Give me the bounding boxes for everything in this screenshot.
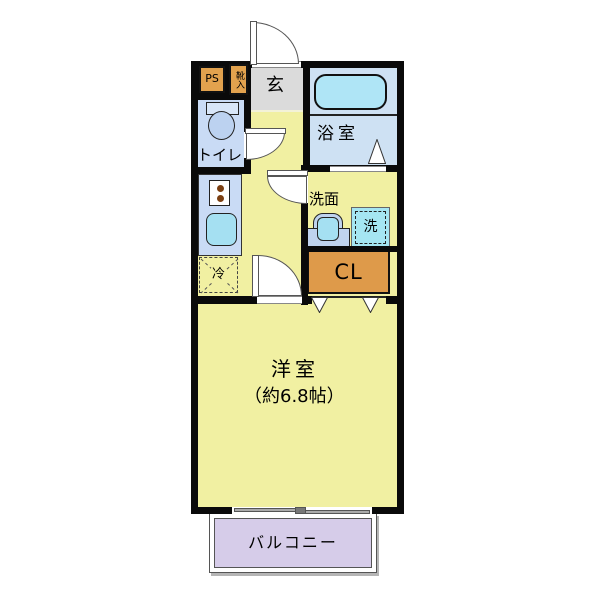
wall-right	[397, 61, 404, 514]
toilet-label: トイレ	[197, 147, 242, 164]
burner-icon	[217, 185, 224, 192]
bathtub	[314, 74, 387, 110]
wall-room-top-right	[386, 296, 404, 304]
balcony-label: バルコニー	[248, 534, 338, 552]
entrance-door-leaf	[250, 21, 257, 65]
room-door-threshold	[257, 296, 302, 304]
entrance-door-arc	[252, 22, 299, 64]
room-door-leaf	[252, 255, 259, 297]
stove	[209, 180, 230, 206]
genkan-label: 玄	[266, 76, 284, 97]
washing-machine-label: 洗	[364, 219, 378, 235]
bathroom-folding-door-icon	[368, 139, 386, 164]
balcony-window	[232, 507, 372, 514]
western-room-label: 洋室	[271, 358, 319, 381]
washroom-label: 洗面	[309, 191, 339, 208]
refrigerator-space: 冷	[199, 257, 238, 293]
washing-machine-space: 洗	[351, 207, 390, 248]
pipe-space-label: PS	[205, 73, 219, 86]
closet-box: CL	[307, 250, 390, 294]
bathtub-platform-line	[310, 114, 397, 116]
shoe-cabinet-label: 靴入	[234, 71, 243, 89]
window-pane-left	[234, 508, 298, 512]
balcony-inner: バルコニー	[214, 518, 372, 568]
balcony-area: バルコニー	[209, 513, 377, 573]
wall-room-top-left	[191, 296, 257, 304]
wall-left	[191, 61, 198, 514]
wall-hall-washroom-lower	[301, 203, 308, 305]
washbasin-bowl	[317, 217, 339, 241]
refrigerator-label: 冷	[211, 268, 226, 283]
western-room-size: （約6.8帖）	[244, 387, 345, 408]
wall-toilet-bottom	[191, 167, 251, 174]
burner-icon	[217, 195, 224, 202]
closet-folding-door-icon	[311, 297, 328, 313]
window-lock	[295, 507, 306, 514]
pipe-space-box: PS	[199, 66, 225, 93]
wall-genkan-bath	[303, 61, 310, 172]
wall-toilet-right-upper	[244, 95, 251, 132]
window-pane-right	[303, 510, 370, 514]
washroom-door-leaf	[267, 170, 308, 176]
wall-washroom-closet	[301, 246, 397, 252]
shoe-cabinet-box: 靴入	[229, 64, 248, 95]
toilet-bowl	[208, 111, 235, 140]
bath-door-threshold	[330, 166, 386, 172]
closet-label: CL	[334, 260, 362, 284]
kitchen-sink	[206, 213, 237, 246]
floor-plan: 冷 洗 CL PS 靴入	[0, 0, 600, 600]
closet-folding-door-icon	[362, 297, 379, 313]
bathroom-label: 浴室	[317, 125, 359, 145]
toilet-door-leaf	[245, 128, 286, 134]
